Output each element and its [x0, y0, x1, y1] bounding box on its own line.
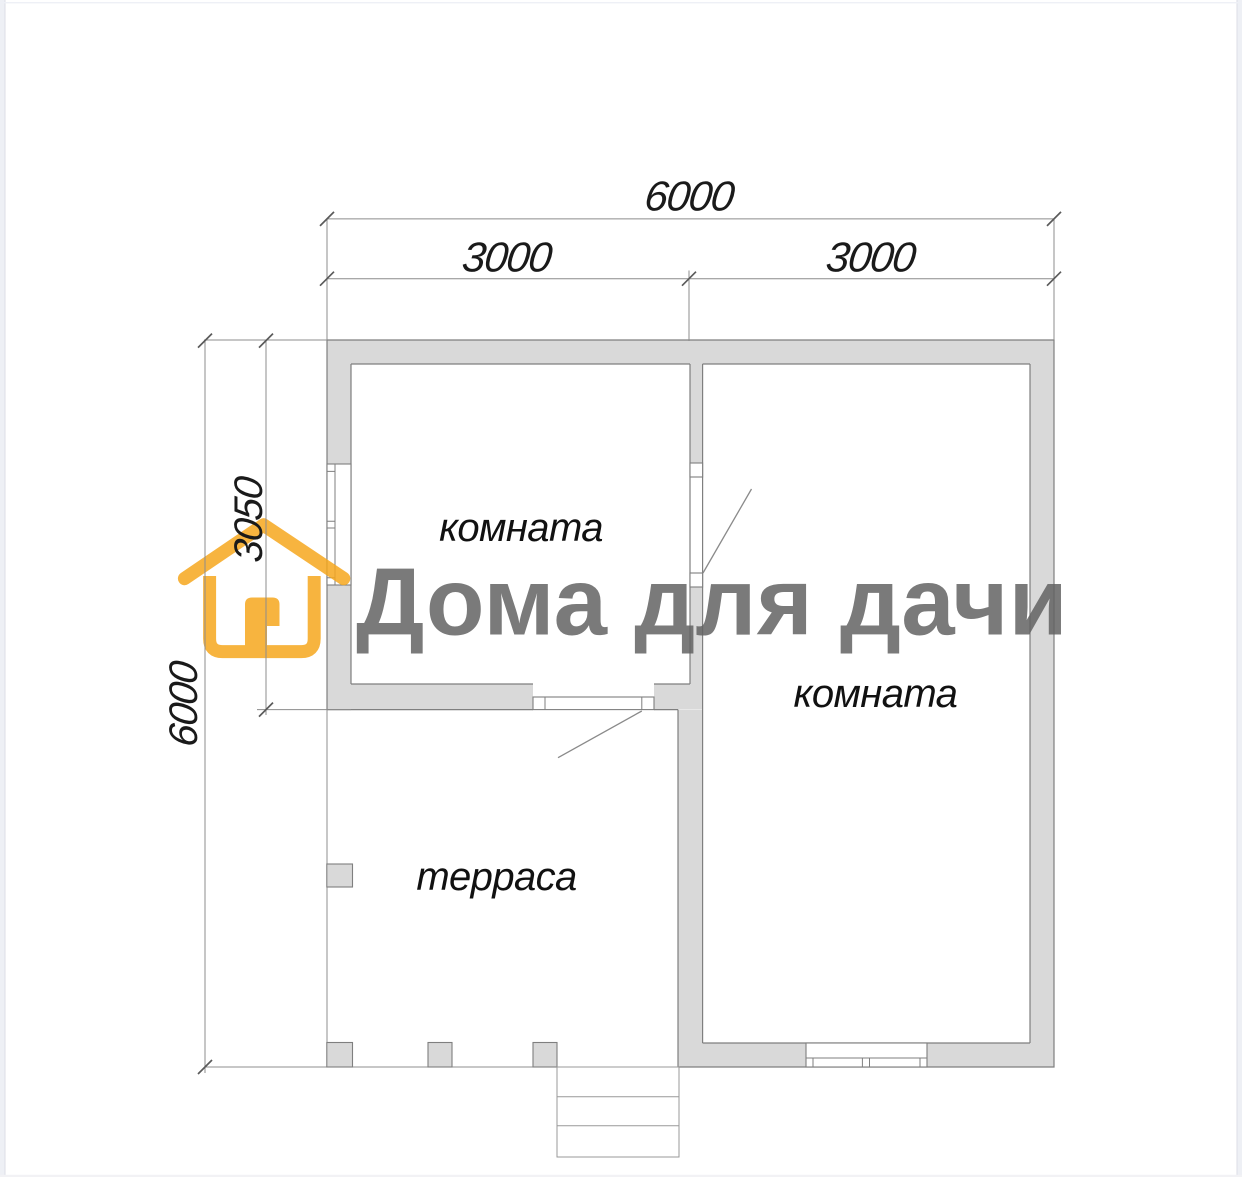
svg-text:3000: 3000	[460, 234, 556, 281]
svg-text:комната: комната	[439, 506, 603, 550]
svg-text:комната: комната	[794, 672, 958, 716]
svg-text:3000: 3000	[824, 234, 920, 281]
svg-text:Дома для дачи: Дома для дачи	[356, 549, 1068, 656]
svg-text:3050: 3050	[226, 474, 271, 564]
svg-text:терраса: терраса	[416, 855, 576, 899]
svg-text:6000: 6000	[642, 173, 738, 220]
svg-text:6000: 6000	[161, 659, 206, 749]
